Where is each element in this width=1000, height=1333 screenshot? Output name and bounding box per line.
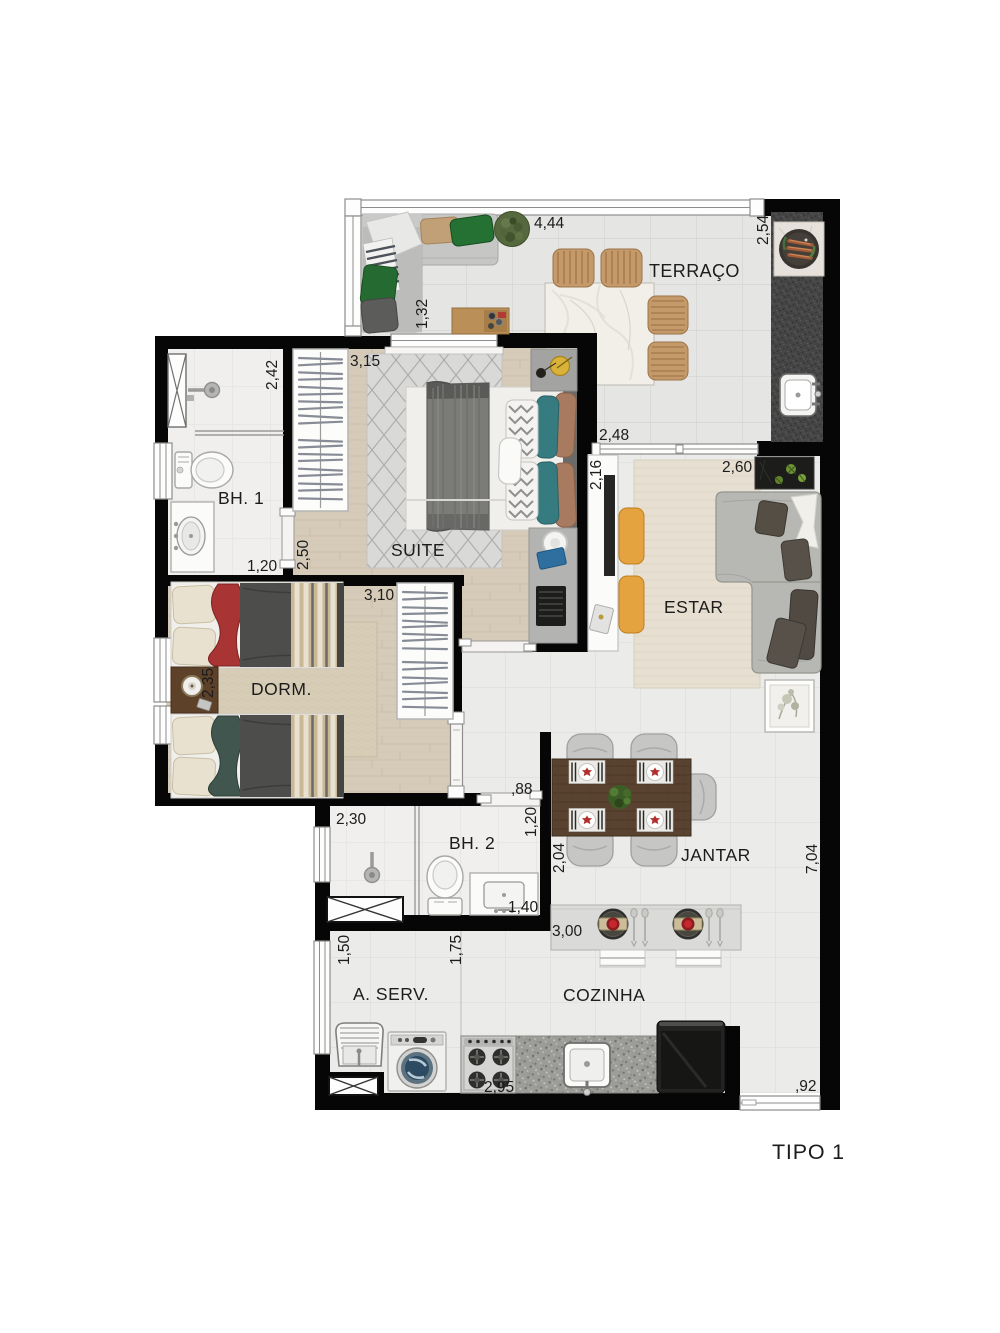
svg-text:BH. 2: BH. 2: [449, 833, 495, 853]
svg-text:JANTAR: JANTAR: [681, 845, 751, 865]
svg-text:2,42: 2,42: [264, 360, 281, 390]
svg-text:1,40: 1,40: [508, 899, 539, 916]
svg-text:BH. 1: BH. 1: [218, 488, 264, 508]
svg-text:2,50: 2,50: [295, 539, 312, 570]
svg-text:1,75: 1,75: [448, 935, 465, 965]
svg-text:2,30: 2,30: [336, 811, 367, 828]
svg-text:4,44: 4,44: [534, 215, 565, 232]
svg-text:DORM.: DORM.: [251, 679, 312, 699]
svg-text:3,00: 3,00: [552, 923, 583, 940]
svg-text:1,50: 1,50: [336, 934, 353, 965]
svg-text:3,15: 3,15: [350, 353, 380, 370]
svg-text:A. SERV.: A. SERV.: [353, 984, 429, 1004]
svg-text:2,48: 2,48: [599, 427, 629, 444]
svg-text:,88: ,88: [511, 781, 533, 798]
svg-text:TERRAÇO: TERRAÇO: [649, 261, 740, 281]
svg-text:1,20: 1,20: [247, 558, 278, 575]
svg-text:2,04: 2,04: [551, 842, 568, 873]
svg-text:3,10: 3,10: [364, 587, 395, 604]
svg-text:1,20: 1,20: [523, 806, 540, 837]
svg-text:2,60: 2,60: [722, 459, 753, 476]
svg-text:TIPO 1: TIPO 1: [772, 1140, 845, 1164]
svg-text:,92: ,92: [795, 1078, 817, 1095]
svg-text:7,04: 7,04: [804, 843, 821, 874]
svg-text:2,54: 2,54: [755, 214, 772, 245]
svg-text:SUITE: SUITE: [391, 540, 445, 560]
svg-text:ESTAR: ESTAR: [664, 597, 724, 617]
svg-text:COZINHA: COZINHA: [563, 985, 645, 1005]
svg-text:1,32: 1,32: [414, 299, 431, 329]
svg-text:2,35: 2,35: [200, 668, 217, 698]
svg-text:2,95: 2,95: [484, 1079, 514, 1096]
svg-text:2,16: 2,16: [588, 460, 605, 490]
